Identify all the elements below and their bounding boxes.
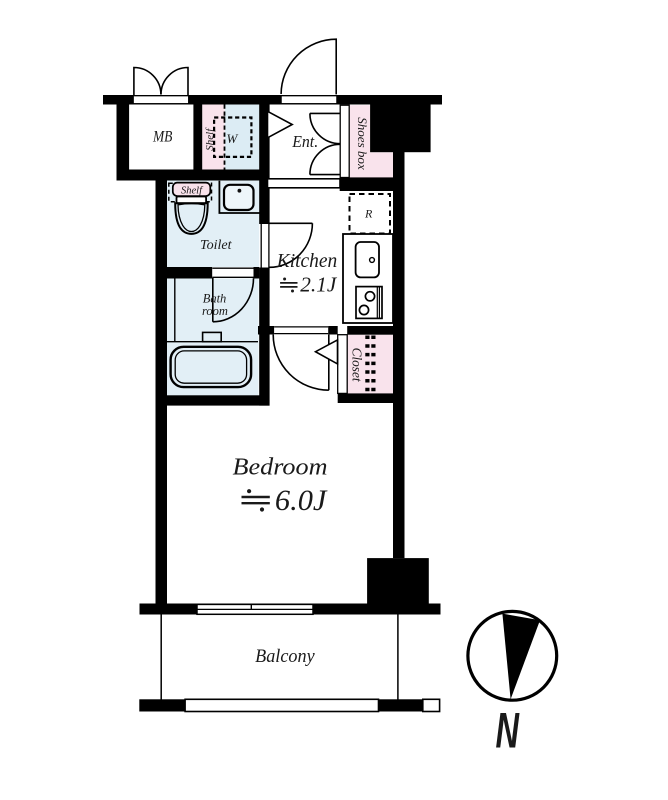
svg-text:Kitchen: Kitchen (276, 250, 337, 272)
svg-text:2.1J: 2.1J (300, 273, 338, 297)
svg-text:N: N (496, 703, 520, 759)
svg-text:Bedroom: Bedroom (233, 453, 328, 480)
svg-text:R: R (364, 206, 373, 220)
svg-text:Balcony: Balcony (255, 646, 315, 667)
svg-text:Shelf: Shelf (181, 185, 204, 196)
svg-text:Shoes box: Shoes box (355, 117, 370, 170)
svg-text:Toilet: Toilet (200, 237, 233, 252)
svg-text:Closet: Closet (348, 348, 363, 383)
svg-text:room: room (202, 304, 228, 318)
svg-text:MB: MB (152, 129, 173, 146)
svg-text:W: W (226, 131, 238, 146)
svg-text:Ent.: Ent. (291, 132, 318, 151)
svg-text:6.0J: 6.0J (275, 484, 328, 517)
